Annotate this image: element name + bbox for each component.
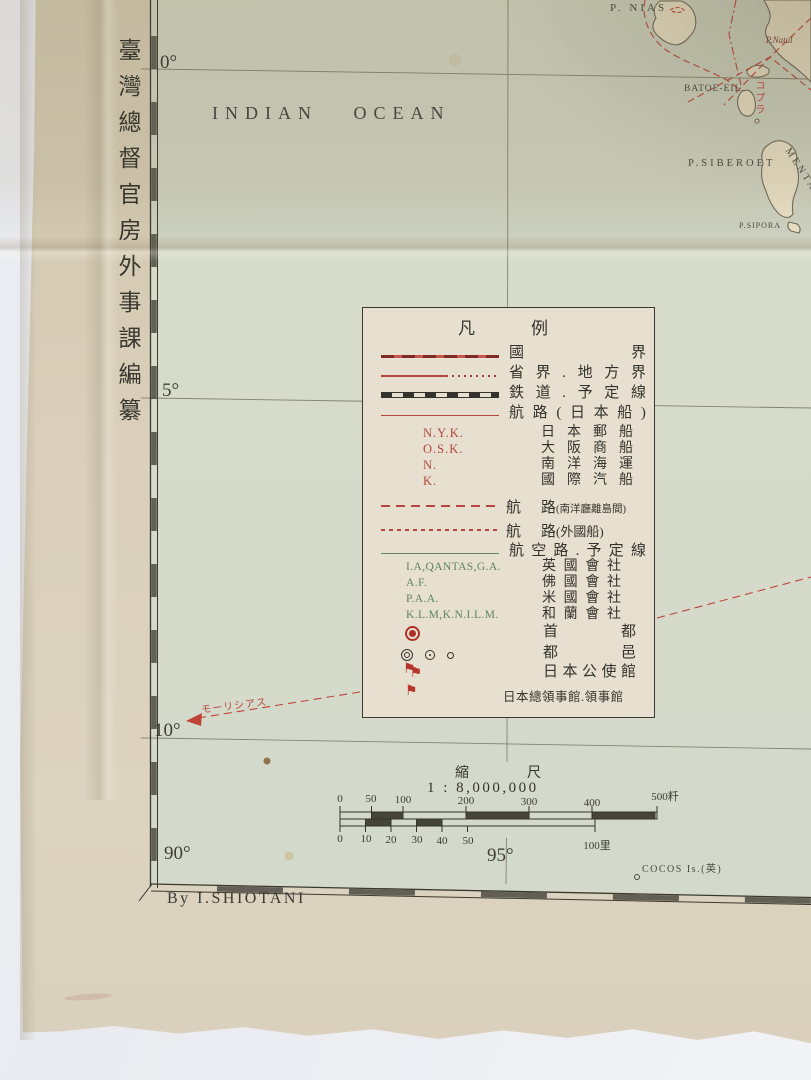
lon-label-95: 95° — [487, 845, 514, 867]
japanese-route-line-sample — [381, 415, 499, 416]
batoe-island-a — [747, 65, 769, 77]
place-label-sipora: P.SIPORA — [739, 221, 781, 230]
airline-name-us: 米國會社 — [542, 591, 621, 607]
route-foreign-paren: (外國船) — [556, 521, 604, 540]
scale-ri-tick: 30 — [412, 834, 423, 846]
legend-box: 凡例 國界 省界.地方界 鉄道.予定線 航路(日本船) N.Y.K. 日本郵船 … — [362, 307, 655, 718]
scale-ri-tick: 10 — [361, 833, 372, 845]
byline: By I.SHIOTANI — [167, 890, 306, 908]
route-foreign-main: 航路 — [506, 520, 556, 541]
company-code-osk: O.S.K. — [423, 441, 463, 457]
scale-ri-tick: 20 — [386, 834, 397, 846]
company-code-k: K. — [423, 473, 437, 489]
legend-label-capital: 首都 — [543, 623, 636, 641]
legend-label-route-foreign: 航路 (外國船) — [506, 520, 650, 541]
legend-label-railway: 鉄道.予定線 — [509, 384, 646, 402]
place-label-natal: P.Natal — [766, 35, 793, 45]
company-code-n: N. — [423, 457, 437, 473]
legend-label-province-boundary: 省界.地方界 — [509, 364, 646, 382]
legend-label-consulate: 日本總領事館.領事館 — [503, 686, 650, 705]
nanyo-route-line-sample — [381, 505, 499, 507]
cocos-island — [635, 875, 640, 880]
flag-icon: ⚑ — [410, 665, 423, 681]
scale-km-tick: 500粁 — [651, 788, 679, 804]
scale-bar — [340, 806, 657, 832]
ocean-label: INDIAN OCEAN — [212, 103, 450, 124]
scale-km-tick: 400 — [584, 797, 601, 809]
legend-label-route-japanese: 航路(日本船) — [509, 404, 646, 422]
route-nanyo-main: 航路 — [506, 496, 556, 517]
airline-code-fr: A.F. — [406, 575, 427, 591]
capital-symbol-icon — [405, 626, 420, 641]
legend-label-national-boundary: 國界 — [509, 344, 646, 362]
foreign-route-line-sample — [381, 529, 499, 531]
place-label-siberoet: P.SIBEROET — [688, 158, 775, 169]
mauritius-route-east — [657, 577, 811, 618]
scale-ri-tick: 100里 — [583, 837, 611, 853]
airline-code-us: P.A.A. — [406, 591, 439, 607]
place-label-cocos: COCOS Is.(英) — [642, 860, 722, 875]
place-label-batoe: BATOE-EIL. — [684, 84, 745, 94]
lat-label-0: 0° — [160, 52, 177, 74]
mauritius-arrow-icon — [186, 713, 202, 726]
company-name-n: 南洋海運 — [541, 457, 633, 473]
lat-label-10: 10° — [154, 720, 181, 742]
scale-km-tick: 0 — [337, 793, 343, 805]
company-code-nyk: N.Y.K. — [423, 425, 464, 441]
company-name-osk: 大阪商船 — [541, 441, 633, 457]
airline-name-nl: 和蘭會社 — [542, 607, 621, 623]
scale-ri-tick: 40 — [437, 835, 448, 847]
legend-label-route-nanyo: 航路 (南洋廳離島間) — [506, 496, 650, 517]
legend-label-town: 都邑 — [543, 644, 636, 662]
lat-label-5: 5° — [162, 380, 179, 402]
scale-ratio: 1 : 8,000,000 — [427, 780, 539, 797]
consulate-flag-icon: ⚑ — [405, 682, 418, 700]
railway-line-sample — [381, 392, 499, 398]
scale-ri-tick: 0 — [337, 833, 343, 845]
photo-backdrop: 臺灣總督官房外事課編纂 By I.SHIOTANI 0° 5° 10° 90° … — [0, 0, 811, 1080]
company-name-nyk: 日本郵船 — [541, 425, 633, 441]
scale-km-tick: 100 — [395, 794, 412, 806]
airline-code-nl: K.L.M,K.N.I.L.M. — [406, 607, 499, 623]
company-name-k: 國際汽船 — [541, 473, 633, 489]
scale-km-tick: 300 — [521, 796, 538, 808]
route-nanyo-paren: (南洋廳離島間) — [556, 501, 626, 516]
legend-label-legation: 日本公使館 — [543, 663, 636, 681]
national-boundary-line-sample — [381, 355, 499, 358]
town-dot-circle-icon — [425, 650, 435, 660]
legend-title: 凡例 — [458, 314, 548, 339]
province-boundary-line-sample — [381, 375, 499, 377]
scale-km-tick: 200 — [458, 795, 475, 807]
airline-name-fr: 佛國會社 — [542, 575, 621, 591]
publisher-vertical-text: 臺灣總督官房外事課編纂 — [110, 38, 144, 438]
legation-flags-icon: ⚑⚑ — [403, 660, 422, 678]
lon-label-90: 90° — [164, 843, 191, 865]
legend-label-air-route: 航空路.予定線 — [509, 542, 646, 560]
scale-km-tick: 50 — [366, 793, 377, 805]
sipora-island — [788, 222, 800, 233]
flag-icon: ⚑ — [405, 683, 418, 699]
airline-code-uk: I.A,QANTAS,G.A. — [406, 559, 501, 575]
copra-annotation: コプラ — [751, 80, 766, 116]
scale-title: 縮尺 — [455, 762, 541, 782]
air-route-line-sample — [381, 553, 499, 554]
place-label-nias: P. NIAS — [610, 2, 667, 14]
airline-name-uk: 英國會社 — [542, 559, 621, 575]
town-small-circle-icon — [447, 652, 454, 659]
scale-ri-tick: 50 — [463, 835, 474, 847]
